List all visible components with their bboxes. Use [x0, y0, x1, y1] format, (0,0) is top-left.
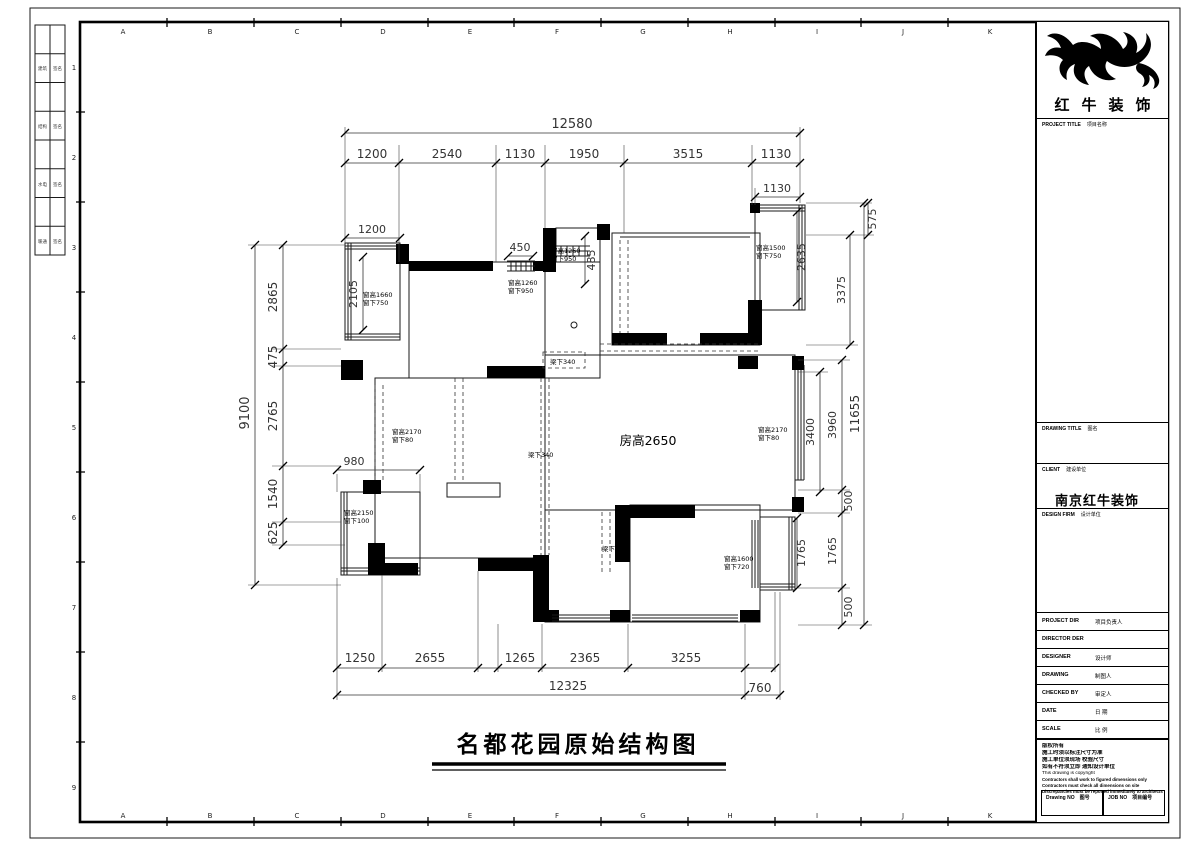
grid-letter: B	[208, 28, 213, 36]
firm-name-signature: 南京红牛装饰	[1055, 490, 1139, 509]
project-title-en: PROJECT TITLE	[1042, 122, 1081, 128]
window-label: 窗下80	[758, 433, 779, 442]
grid-letter: G	[640, 812, 645, 820]
title-block: 红牛装饰 PROJECT TITLE项目名称 DRAWING TITLE图名 C…	[1035, 22, 1168, 822]
grid-letter: C	[295, 28, 300, 36]
dim: 2655	[415, 651, 446, 665]
grid-letter: A	[121, 28, 126, 36]
grid-number: 8	[72, 694, 76, 702]
dim-top-total: 12580	[551, 117, 592, 132]
grid-letter: K	[988, 812, 993, 820]
beam-label: 梁下340	[528, 450, 553, 459]
grid-letter: K	[988, 28, 993, 36]
grid-letter: E	[468, 812, 472, 820]
info-row: DESIGNER 设计师	[1037, 648, 1168, 666]
dim-bottom-total: 12325	[549, 679, 587, 693]
info-zh: 设计师	[1095, 654, 1112, 662]
drawing-no-box: Drawing NO图号	[1041, 790, 1103, 816]
info-en: DATE	[1042, 708, 1057, 714]
design-firm-section: DESIGN FIRM设计单位	[1037, 508, 1168, 612]
strip-cell: 签名	[53, 238, 62, 245]
grid-letter: G	[640, 28, 645, 36]
info-row: CHECKED BY 审定人	[1037, 684, 1168, 702]
info-zh: 项目负责人	[1095, 618, 1123, 626]
strip-cell: 签名	[53, 123, 62, 130]
dim: 2540	[432, 147, 463, 161]
note-line: 如有不符须立即 通知设计单位	[1042, 764, 1168, 771]
info-zh: 制图人	[1095, 672, 1112, 680]
grid-number: 6	[72, 514, 77, 522]
dim: 3960	[826, 411, 839, 439]
beam-label: 梁下80	[614, 333, 635, 342]
dim: 2765	[266, 401, 280, 432]
strip-cell: 暖通	[38, 238, 47, 245]
drawing-title-block: 名都花园原始结构图	[432, 731, 726, 770]
design-firm-zh: 设计单位	[1081, 512, 1101, 518]
design-firm-en: DESIGN FIRM	[1042, 512, 1075, 518]
dim: 1765	[795, 539, 808, 567]
strip-cell: 建筑	[38, 65, 47, 72]
dim: 2365	[570, 651, 601, 665]
dim: 575	[866, 209, 879, 230]
strip-cell: 水电	[38, 181, 47, 188]
dim: 1130	[505, 147, 536, 161]
job-no-box: JOB NO项目编号	[1103, 790, 1165, 816]
drawing-title-en: DRAWING TITLE	[1042, 426, 1081, 432]
grid-letter: C	[295, 812, 300, 820]
dim: 1950	[569, 147, 600, 161]
window-label: 窗高1600	[724, 554, 754, 563]
window-label: 窗高1260	[551, 246, 581, 255]
note-line: 施工时须以标注尺寸为准	[1042, 750, 1168, 757]
dim-right-total: 11655	[848, 395, 862, 433]
dim: 2105	[347, 280, 360, 308]
grid-number: 9	[72, 784, 76, 792]
note-line: 版权所有	[1042, 743, 1168, 750]
dim: 2865	[266, 282, 280, 313]
window-label: 窗下720	[724, 562, 749, 571]
grid-number: 5	[72, 424, 76, 432]
grid-letter: F	[555, 28, 559, 36]
dim: 760	[749, 681, 772, 695]
dim: 1250	[345, 651, 376, 665]
dim: 1130	[763, 182, 791, 195]
door-knob-symbol	[571, 322, 577, 328]
dim-left-total: 9100	[238, 396, 253, 429]
info-row: DIRECTOR DER	[1037, 630, 1168, 648]
grid-letter: A	[121, 812, 126, 820]
grid-letter: H	[727, 28, 732, 36]
grid-number: 4	[72, 334, 77, 342]
beam-lines	[375, 240, 758, 572]
grid-letter: I	[816, 812, 818, 820]
dim: 1265	[505, 651, 536, 665]
window-label: 窗高2170	[392, 427, 422, 436]
signature-strip: 建筑 签名 结构 签名 水电 签名 暖通 签名	[35, 25, 65, 255]
dim: 1200	[358, 223, 386, 236]
job-no-zh: 项目编号	[1132, 795, 1152, 801]
strip-cell: 签名	[53, 181, 62, 188]
beam-label: 梁下340	[550, 357, 575, 366]
grid-letter: F	[555, 812, 559, 820]
info-en: DIRECTOR DER	[1042, 636, 1084, 642]
window-label: 窗高2150	[344, 508, 374, 517]
plan-labels: 房高2650 窗高1660 窗下750 窗高1260 窗下950 窗高1260 …	[344, 243, 788, 571]
window-label: 窗下100	[344, 516, 369, 525]
grid-letter: B	[208, 812, 213, 820]
drawing-title-section: DRAWING TITLE图名	[1037, 422, 1168, 463]
room-height-label: 房高2650	[620, 433, 677, 448]
client-zh: 建设单位	[1066, 467, 1086, 473]
grid-letter: H	[727, 812, 732, 820]
dim: 2635	[795, 243, 808, 271]
dim: 450	[510, 241, 531, 254]
client-en: CLIENT	[1042, 467, 1060, 473]
window-label: 窗高1660	[363, 290, 393, 299]
dim: 3515	[673, 147, 704, 161]
window-label: 窗下950	[508, 286, 533, 295]
info-en: PROJECT DIR	[1042, 618, 1079, 624]
dim: 3255	[671, 651, 702, 665]
window-label: 窗下950	[551, 254, 576, 263]
beam-label: 梁下300	[602, 544, 627, 553]
floor-plan-canvas: A B C D E F G H I J K A B C D E F G H I …	[0, 0, 1200, 845]
dim: 625	[266, 522, 280, 545]
dim: 475	[266, 346, 280, 369]
dim: 500	[842, 597, 855, 618]
grid-letter: D	[380, 812, 385, 820]
redbull-logo	[1043, 25, 1163, 93]
info-row: SCALE 比 例	[1037, 720, 1168, 738]
dim: 1765	[826, 537, 839, 565]
info-zh: 比 例	[1095, 726, 1108, 734]
grid-letter: E	[468, 28, 472, 36]
dim: 3375	[835, 276, 848, 304]
grid-letter: I	[816, 28, 818, 36]
grid-letter: J	[901, 28, 904, 36]
note-line: 施工单位须现场 校验尺寸	[1042, 757, 1168, 764]
info-row: DATE 日 期	[1037, 702, 1168, 720]
info-en: SCALE	[1042, 726, 1061, 732]
project-title-zh: 项目名称	[1087, 122, 1107, 128]
grid-letter: D	[380, 28, 385, 36]
dim: 3400	[804, 418, 817, 446]
drawing-sheet: A B C D E F G H I J K A B C D E F G H I …	[0, 0, 1200, 845]
dim: 500	[842, 491, 855, 512]
window-label: 窗下80	[392, 435, 413, 444]
window-label: 窗高1500	[756, 243, 786, 252]
grid-number: 2	[72, 154, 76, 162]
grid-number: 7	[72, 604, 76, 612]
brand-name: 红牛装饰	[1037, 94, 1168, 115]
grid-number: 1	[72, 64, 76, 72]
sheet-frame	[30, 8, 1180, 838]
dim: 1200	[357, 147, 388, 161]
info-en: DRAWING	[1042, 672, 1069, 678]
info-zh: 日 期	[1095, 708, 1108, 716]
dim: 485	[585, 250, 598, 271]
window-label: 窗下750	[756, 251, 781, 260]
info-en: CHECKED BY	[1042, 690, 1078, 696]
drawing-title: 名都花园原始结构图	[457, 731, 700, 758]
window-label: 窗高2170	[758, 425, 788, 434]
job-no-en: JOB NO	[1108, 795, 1127, 801]
dim: 1130	[761, 147, 792, 161]
grid-number: 3	[72, 244, 76, 252]
drawing-title-zh: 图名	[1087, 426, 1097, 432]
dim: 1540	[266, 479, 280, 510]
info-en: DESIGNER	[1042, 654, 1071, 660]
project-title-section: PROJECT TITLE项目名称	[1037, 118, 1168, 422]
strip-cell: 签名	[53, 65, 62, 72]
window-label: 窗高1260	[508, 278, 538, 287]
window-label: 窗下750	[363, 298, 388, 307]
strip-cell: 结构	[38, 123, 47, 130]
info-zh: 审定人	[1095, 690, 1112, 698]
info-row: DRAWING 制图人	[1037, 666, 1168, 684]
drawing-no-en: Drawing NO	[1046, 795, 1075, 801]
info-row: PROJECT DIR 项目负责人	[1037, 612, 1168, 630]
dim: 980	[344, 455, 365, 468]
copyright-notes: 版权所有 施工时须以标注尺寸为准 施工单位须现场 校验尺寸 如有不符须立即 通知…	[1037, 738, 1168, 795]
drawing-no-zh: 图号	[1080, 795, 1090, 801]
grid-letter: J	[901, 812, 904, 820]
